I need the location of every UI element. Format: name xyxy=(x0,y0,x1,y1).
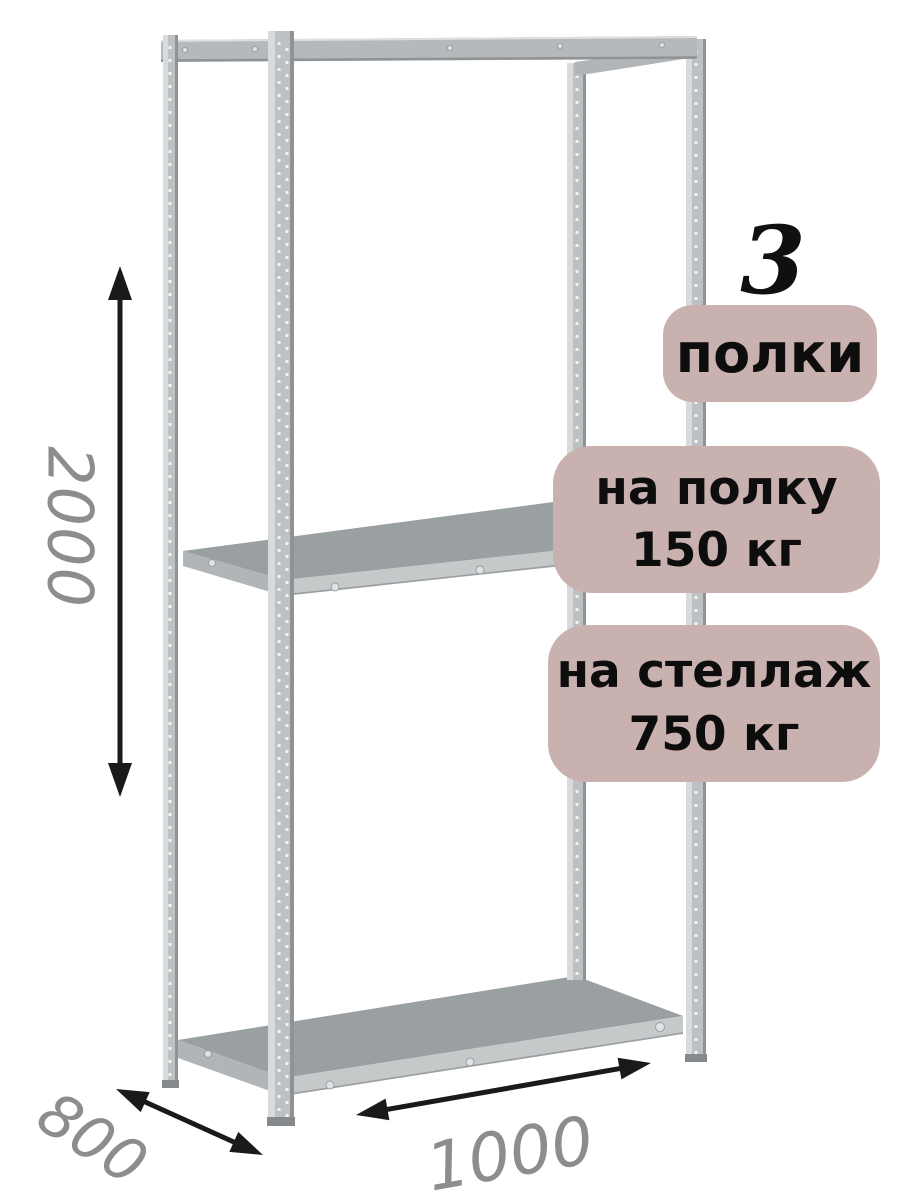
rack-post-back-left xyxy=(162,35,179,1088)
shelf-count-label: полки xyxy=(676,322,864,385)
height-dimension-label: 2000 xyxy=(34,446,107,608)
shelf-load-line2: 150 кг xyxy=(631,520,802,581)
product-card: 2000 800 1000 3 полки на полку 150 кг на… xyxy=(0,0,900,1200)
rack-load-badge: на стеллаж 750 кг xyxy=(548,625,880,782)
height-dimension-arrow xyxy=(108,266,132,797)
shelf-load-line1: на полку xyxy=(595,458,837,519)
rack-top-beam xyxy=(161,36,697,76)
rack-load-line1: на стеллаж xyxy=(557,641,872,703)
rack-shelf-bottom xyxy=(178,976,683,1096)
rack-illustration xyxy=(0,0,900,1200)
shelf-load-badge: на полку 150 кг xyxy=(553,446,880,593)
shelf-count-badge: полки xyxy=(663,305,877,402)
rack-post-front-left xyxy=(267,31,295,1126)
shelf-count-number: 3 xyxy=(740,214,805,308)
rack-load-line2: 750 кг xyxy=(629,704,800,766)
